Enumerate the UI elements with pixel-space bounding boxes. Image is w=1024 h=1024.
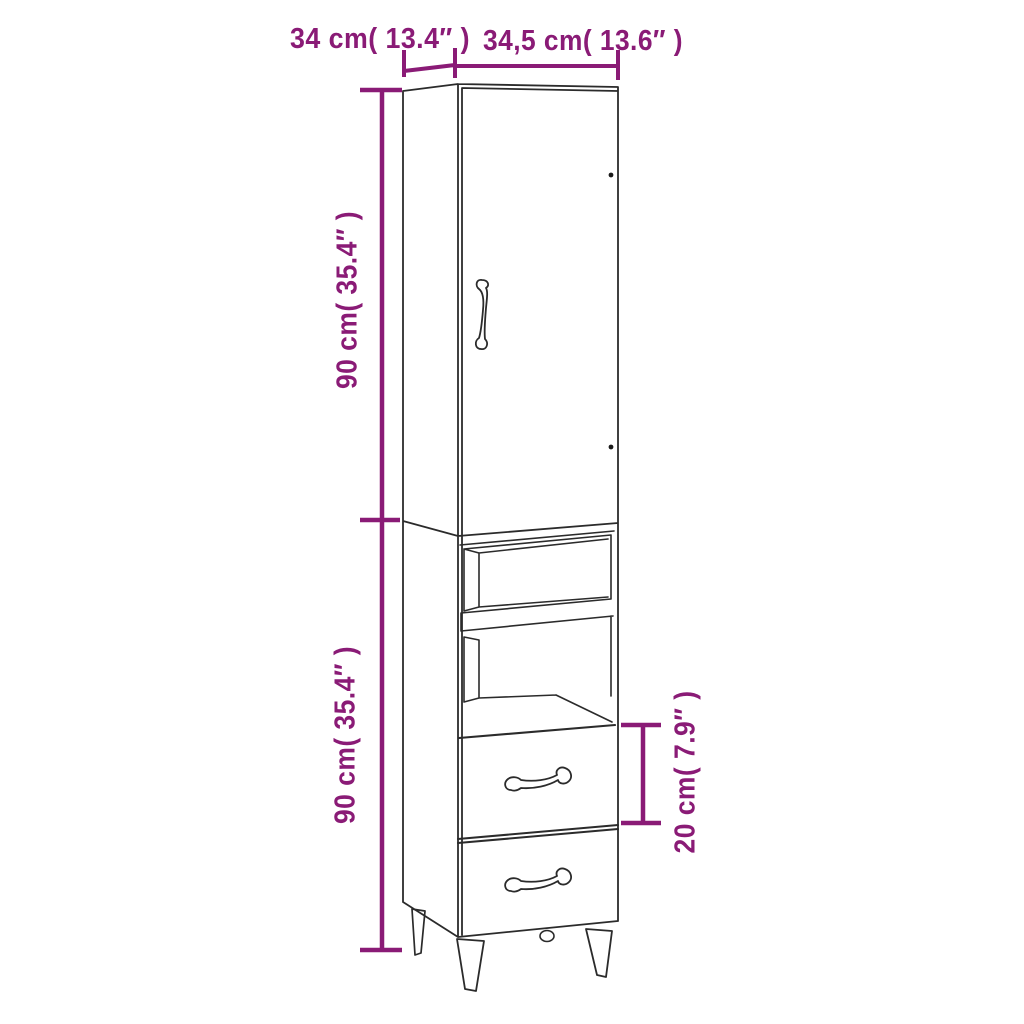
width-dimension-label: 34,5 cm( 13.6″ )	[483, 25, 683, 57]
leg-front-right	[586, 929, 612, 977]
door-handle-icon	[476, 280, 488, 349]
right-dimension-lines	[621, 725, 661, 823]
door-pin-dot-top	[609, 173, 614, 178]
drawer-1-handle-icon	[505, 767, 571, 790]
drawer-height-dimension-label: 20 cm( 7.9″ )	[670, 691, 702, 854]
dimension-diagram-canvas: 34 cm( 13.4″ ) 34,5 cm( 13.6″ ) 90 cm( 3…	[0, 0, 1024, 1024]
depth-dimension-label: 34 cm( 13.4″ )	[290, 23, 470, 55]
leg-back-left	[412, 909, 425, 955]
dimension-annotations: 34 cm( 13.4″ ) 34,5 cm( 13.6″ ) 90 cm( 3…	[290, 23, 702, 950]
cabinet-frame-lines	[403, 84, 618, 937]
shelf-compartment-lines	[460, 531, 614, 722]
cabinet-dimension-diagram: 34 cm( 13.4″ ) 34,5 cm( 13.6″ ) 90 cm( 3…	[0, 0, 1024, 1024]
center-glide-foot	[540, 931, 554, 942]
leg-front-left	[457, 939, 484, 991]
cabinet-drawing	[403, 84, 618, 991]
door-pin-dot-bottom	[609, 445, 614, 450]
drawer-2-handle-icon	[505, 868, 571, 891]
cabinet-legs	[412, 909, 612, 991]
upper-height-dimension-label: 90 cm( 35.4″ )	[332, 211, 364, 389]
lower-height-dimension-label: 90 cm( 35.4″ )	[330, 646, 362, 824]
left-dimension-lines	[360, 90, 402, 950]
drawer-divider-lines	[458, 725, 618, 843]
